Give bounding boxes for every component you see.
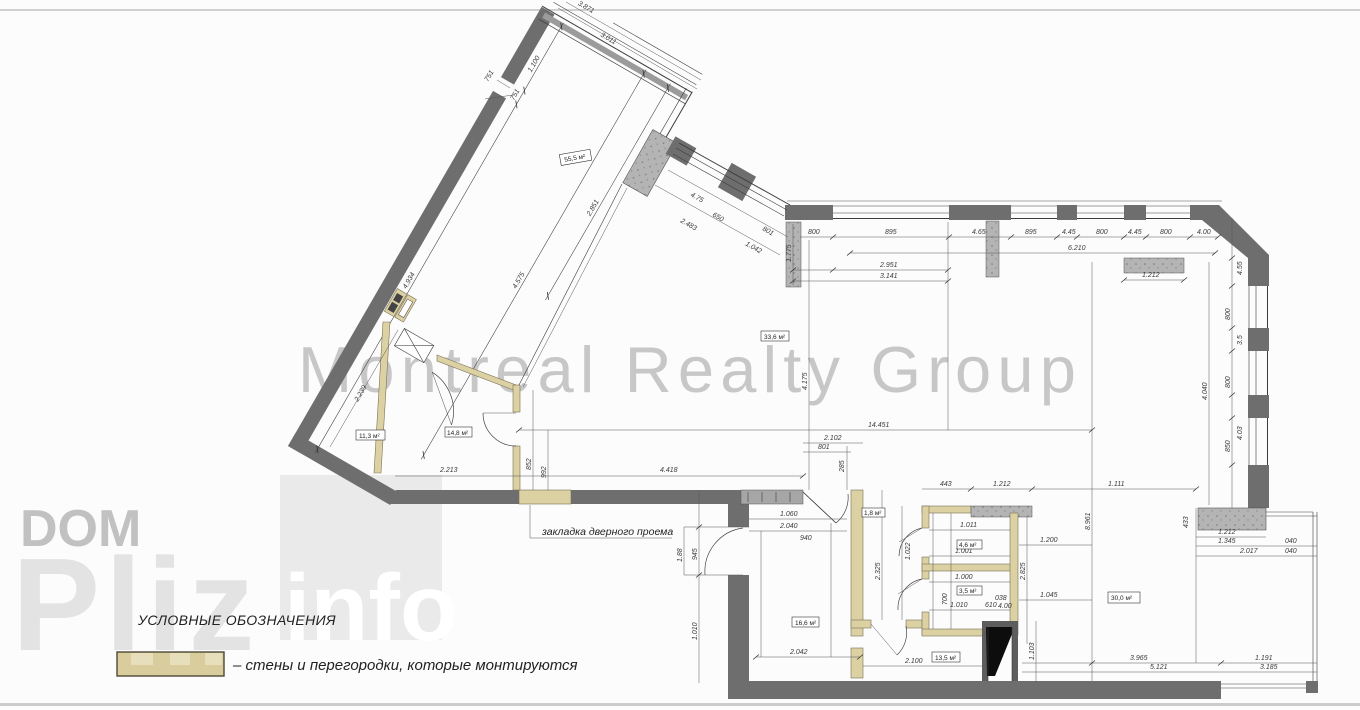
svg-text:852: 852 [526, 458, 533, 470]
svg-text:940: 940 [800, 535, 812, 542]
svg-text:1.060: 1.060 [780, 511, 798, 518]
svg-text:038: 038 [995, 595, 1007, 602]
svg-text:800: 800 [1160, 229, 1172, 236]
svg-text:2.213: 2.213 [439, 467, 458, 474]
svg-text:800: 800 [1225, 308, 1232, 320]
svg-text:2.951: 2.951 [879, 262, 898, 269]
svg-text:13,5 м²: 13,5 м² [935, 655, 957, 662]
svg-text:1.022: 1.022 [905, 542, 912, 560]
svg-text:1.88: 1.88 [677, 548, 684, 562]
svg-text:1.111: 1.111 [1108, 481, 1125, 488]
svg-text:850: 850 [1225, 440, 1232, 452]
svg-text:1.212: 1.212 [1142, 272, 1160, 279]
svg-text:2.042: 2.042 [789, 649, 808, 656]
svg-text:945: 945 [692, 548, 699, 560]
svg-text:1.010: 1.010 [950, 602, 968, 609]
svg-text:закладка дверного проема: закладка дверного проема [541, 526, 673, 538]
svg-text:800: 800 [1096, 229, 1108, 236]
svg-text:800: 800 [1225, 376, 1232, 388]
svg-text:443: 443 [940, 481, 952, 488]
svg-text:1.212: 1.212 [1218, 529, 1236, 536]
svg-text:4.65: 4.65 [972, 229, 986, 236]
svg-text:2.040: 2.040 [779, 523, 798, 530]
svg-text:4,6 м²: 4,6 м² [959, 542, 977, 549]
svg-text:30,0 м²: 30,0 м² [1111, 595, 1133, 602]
svg-text:14.451: 14.451 [868, 422, 890, 429]
svg-text:1.212: 1.212 [993, 481, 1011, 488]
svg-text:6.210: 6.210 [1068, 245, 1086, 252]
svg-text:16,6 м²: 16,6 м² [795, 620, 817, 627]
svg-text:3.141: 3.141 [880, 273, 898, 280]
svg-text:– стены и перегородки, которые: – стены и перегородки, которые монтируют… [232, 657, 578, 674]
svg-text:8.961: 8.961 [1085, 512, 1092, 530]
svg-text:3,5 м²: 3,5 м² [959, 588, 977, 595]
svg-text:3.5: 3.5 [1237, 335, 1244, 345]
svg-text:1.775: 1.775 [786, 244, 793, 262]
svg-text:1.103: 1.103 [1029, 642, 1036, 660]
svg-text:2.100: 2.100 [904, 658, 923, 665]
svg-text:285: 285 [839, 460, 846, 473]
svg-text:1.191: 1.191 [1255, 655, 1273, 662]
svg-text:040: 040 [1285, 538, 1297, 545]
svg-text:4.00: 4.00 [998, 603, 1012, 610]
svg-text:895: 895 [885, 229, 897, 236]
svg-text:3.965: 3.965 [1130, 655, 1148, 662]
svg-text:11,3 м²: 11,3 м² [359, 433, 380, 440]
svg-text:2.825: 2.825 [1020, 562, 1027, 581]
svg-text:3.185: 3.185 [1260, 664, 1278, 671]
svg-text:1.200: 1.200 [1040, 537, 1058, 544]
svg-text:2.325: 2.325 [875, 562, 882, 581]
svg-text:УСЛОВНЫЕ ОБОЗНАЧЕНИЯ: УСЛОВНЫЕ ОБОЗНАЧЕНИЯ [137, 612, 336, 628]
svg-text:4.418: 4.418 [660, 467, 678, 474]
svg-text:992: 992 [541, 466, 548, 478]
svg-text:700: 700 [942, 593, 949, 605]
svg-text:895: 895 [1025, 229, 1037, 236]
svg-text:4.45: 4.45 [1128, 229, 1142, 236]
svg-text:33,6 м²: 33,6 м² [764, 334, 786, 341]
svg-text:4.55: 4.55 [1237, 261, 1244, 275]
svg-text:1,8 м²: 1,8 м² [864, 510, 882, 517]
svg-text:1.000: 1.000 [955, 574, 973, 581]
svg-text:info: info [284, 555, 458, 661]
svg-text:610: 610 [985, 602, 997, 609]
svg-text:800: 800 [808, 229, 820, 236]
svg-text:801: 801 [818, 444, 830, 451]
svg-text:1.010: 1.010 [692, 622, 699, 640]
svg-text:1.011: 1.011 [960, 522, 977, 529]
svg-text:2.017: 2.017 [1239, 548, 1259, 555]
svg-text:14,8 м²: 14,8 м² [447, 430, 469, 437]
svg-text:433: 433 [1183, 516, 1190, 528]
svg-text:1.045: 1.045 [1040, 592, 1058, 599]
svg-text:4.040: 4.040 [1202, 382, 1209, 400]
svg-text:040: 040 [1285, 548, 1297, 555]
svg-text:5.121: 5.121 [1150, 664, 1168, 671]
svg-text:4.175: 4.175 [802, 372, 809, 390]
svg-text:4.00: 4.00 [1197, 229, 1211, 236]
svg-text:2.102: 2.102 [823, 435, 842, 442]
svg-text:1.345: 1.345 [1218, 538, 1236, 545]
svg-text:4.45: 4.45 [1062, 229, 1076, 236]
svg-text:4.03: 4.03 [1237, 426, 1244, 440]
